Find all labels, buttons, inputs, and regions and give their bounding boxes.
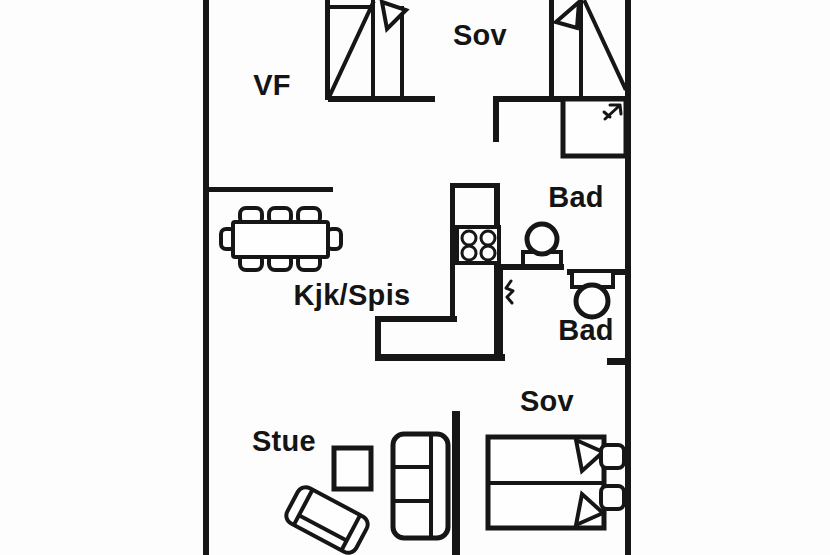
wall-bath2-south-stub (607, 358, 631, 365)
floor-plan: VF Sov Bad Kjk/Spis Bad Sov Stue (0, 0, 830, 555)
coffee-table-icon (334, 448, 371, 489)
plumbing-symbol (506, 281, 513, 303)
wall-bath1-door-stub (493, 96, 499, 142)
counter-edge (450, 183, 455, 322)
single-bed-icon (549, 0, 625, 99)
room-label-sov-top: Sov (453, 19, 507, 52)
single-bed-icon (325, 0, 406, 100)
basin-sink-icon (523, 224, 561, 266)
stove-icon (457, 227, 499, 263)
room-label-bad-lower: Bad (558, 314, 614, 347)
wall-kitchen-step-top (375, 316, 457, 322)
sofa-body (393, 434, 448, 538)
pillow (601, 445, 624, 468)
sink-bowl (527, 224, 557, 254)
room-label-kjk-spis: Kjk/Spis (294, 279, 411, 312)
wall-left (203, 0, 209, 555)
toilet-bowl (576, 285, 608, 317)
room-label-stue: Stue (252, 425, 316, 458)
room-label-sov-right: Sov (520, 385, 574, 418)
wall-bed1-south (328, 96, 435, 102)
bed-frame-line (325, 0, 330, 100)
wall-vf-south (203, 187, 333, 192)
duvet-fold (556, 2, 579, 28)
wardrobe-icon (563, 99, 626, 156)
pillow (601, 486, 624, 509)
duvet-diagonal (585, 2, 625, 88)
bed-frame-line (549, 0, 554, 99)
counter-edge (450, 183, 500, 188)
floor-plan-drawing (0, 0, 830, 555)
duvet-diagonal (330, 3, 373, 95)
table-top (334, 448, 371, 489)
sofa-icon (393, 434, 448, 538)
table-top (233, 222, 328, 257)
bed-frame-line (325, 5, 375, 9)
toilet-icon (506, 271, 613, 317)
bed-frame-line (371, 0, 375, 99)
wall-stue-sov (452, 411, 460, 555)
loveseat-icon (283, 484, 371, 555)
room-label-bad-upper: Bad (548, 181, 604, 214)
double-bed-icon (488, 437, 624, 528)
bed-frame-line (400, 6, 404, 99)
wall-bath2-west (494, 264, 503, 361)
wall-right (625, 0, 631, 555)
wall-kitchen-south (375, 354, 505, 361)
room-label-vf: VF (253, 69, 291, 102)
dining-table-icon (221, 208, 341, 270)
